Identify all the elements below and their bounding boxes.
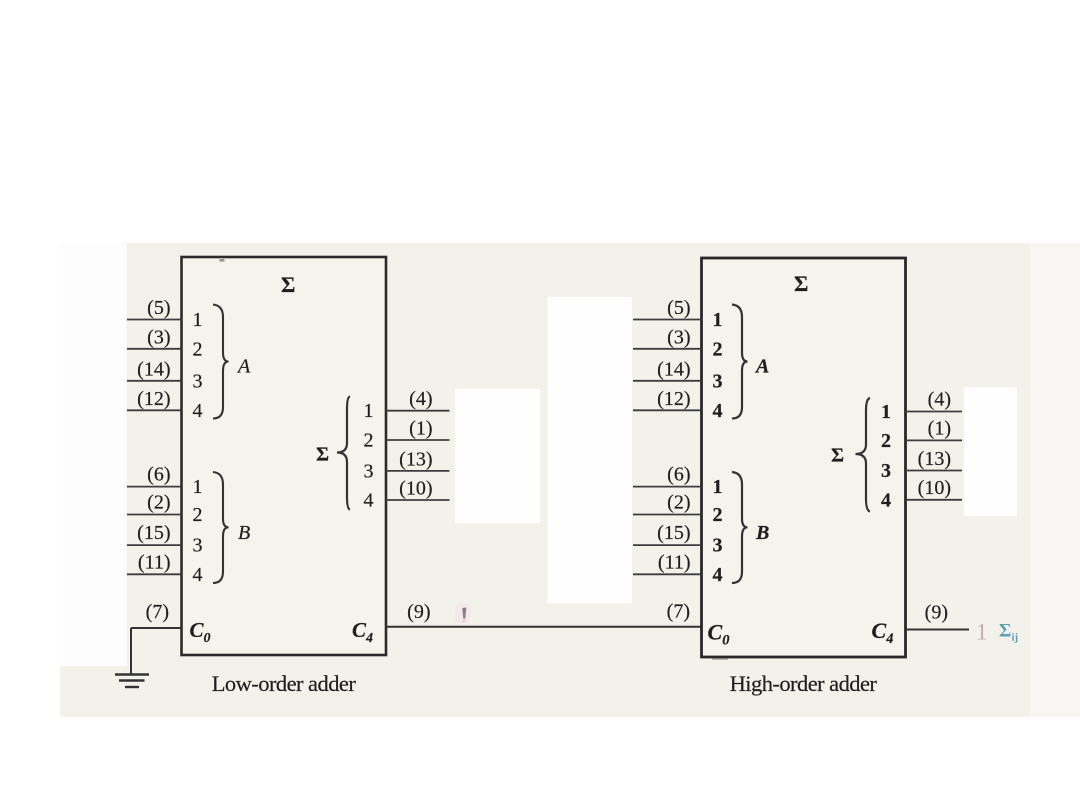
svg-text:(9): (9) (407, 601, 430, 623)
svg-text:A: A (236, 356, 251, 378)
svg-text:(11): (11) (138, 551, 171, 573)
svg-text:1: 1 (881, 401, 891, 423)
svg-text:Σ: Σ (316, 444, 329, 466)
svg-text:2: 2 (881, 430, 891, 452)
svg-text:4: 4 (193, 400, 203, 422)
svg-text:(10): (10) (918, 477, 951, 499)
svg-text:(4): (4) (928, 389, 951, 411)
svg-text:(7): (7) (667, 601, 690, 623)
svg-text:1: 1 (713, 476, 723, 498)
svg-text:(13): (13) (918, 448, 951, 470)
svg-text:B: B (755, 522, 769, 544)
svg-text:1: 1 (193, 476, 203, 498)
svg-text:Σ: Σ (281, 272, 295, 297)
svg-text:(6): (6) (147, 464, 170, 486)
svg-text:(5): (5) (147, 297, 170, 319)
svg-text:3: 3 (193, 370, 203, 392)
svg-text:(14): (14) (137, 358, 170, 380)
svg-text:(3): (3) (667, 326, 690, 348)
svg-text:3: 3 (881, 460, 891, 482)
svg-text:3: 3 (713, 370, 723, 392)
svg-text:2: 2 (364, 430, 374, 452)
svg-text:(3): (3) (147, 326, 170, 348)
svg-text:1: 1 (193, 309, 203, 331)
svg-text:Σ: Σ (831, 445, 844, 467)
svg-text:3: 3 (713, 535, 723, 557)
svg-text:(5): (5) (667, 297, 690, 319)
svg-text:(4): (4) (409, 388, 432, 410)
svg-text:4: 4 (364, 490, 374, 512)
svg-text:3: 3 (364, 460, 374, 482)
svg-text:(13): (13) (399, 448, 432, 470)
svg-text:(2): (2) (147, 492, 170, 514)
svg-text:(7): (7) (146, 601, 169, 623)
svg-text:(1): (1) (409, 418, 432, 440)
svg-text:2: 2 (193, 504, 203, 526)
svg-text:(15): (15) (137, 522, 170, 544)
svg-text:(6): (6) (667, 464, 690, 486)
svg-text:A: A (754, 356, 769, 378)
svg-text:(9): (9) (925, 602, 948, 624)
svg-text:(12): (12) (137, 388, 170, 410)
svg-text:1: 1 (976, 620, 988, 645)
svg-text:(10): (10) (399, 478, 432, 500)
svg-text:2: 2 (193, 338, 203, 360)
svg-text:(1): (1) (928, 418, 951, 440)
svg-text:High-order adder: High-order adder (730, 671, 878, 696)
svg-text:1: 1 (713, 309, 723, 331)
svg-text:4: 4 (193, 564, 203, 586)
svg-text:(15): (15) (657, 522, 690, 544)
svg-text:1: 1 (364, 400, 374, 422)
svg-text:2: 2 (713, 338, 723, 360)
svg-text:Σ: Σ (794, 271, 808, 296)
svg-text:(14): (14) (657, 358, 690, 380)
svg-text:4: 4 (713, 564, 723, 586)
svg-text:Low-order adder: Low-order adder (212, 671, 357, 696)
svg-text:4: 4 (713, 400, 723, 422)
svg-text:4: 4 (881, 489, 891, 511)
svg-text:(11): (11) (658, 551, 691, 573)
svg-text:(12): (12) (657, 388, 690, 410)
svg-text:B: B (238, 522, 250, 544)
svg-text:3: 3 (193, 535, 203, 557)
svg-text:(2): (2) (667, 492, 690, 514)
svg-text:2: 2 (713, 504, 723, 526)
